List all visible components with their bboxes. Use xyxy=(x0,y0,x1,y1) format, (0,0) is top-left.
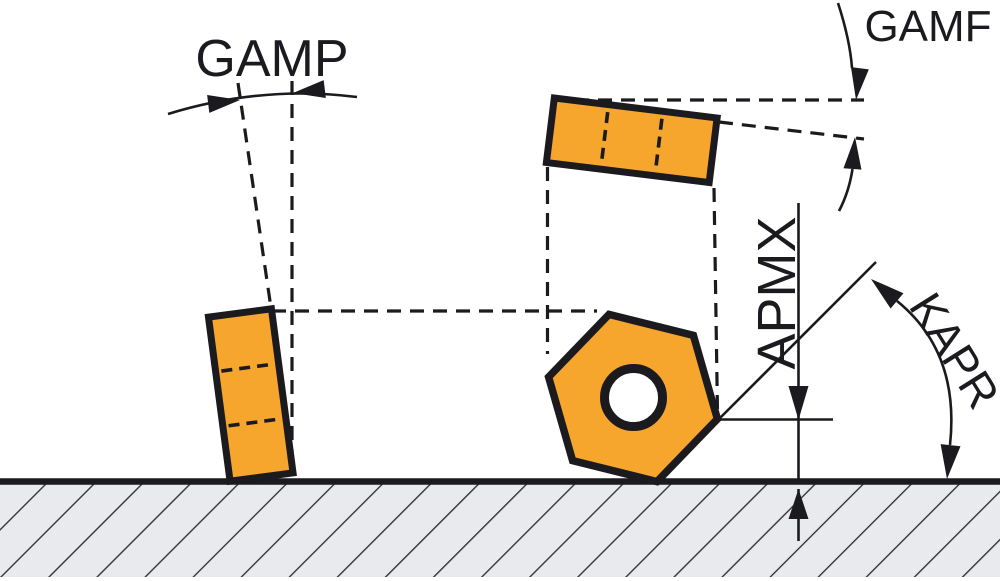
gamf-arrow-up-icon xyxy=(844,136,864,169)
workpiece xyxy=(0,482,1000,578)
gamf-label: GAMF xyxy=(864,2,991,51)
insert-side-view-body xyxy=(208,309,293,481)
apmx-arrow-down-icon xyxy=(789,386,809,420)
gamf-arrow-down-icon xyxy=(847,67,869,101)
insert-front-view-body xyxy=(546,98,717,183)
workpiece-hatch-pattern xyxy=(0,484,1000,577)
gamp-tilted-edge-extension-line xyxy=(238,83,271,308)
gamp-dimension-arc xyxy=(168,93,357,114)
projection-line-right xyxy=(714,188,718,413)
gamp-arrow-left-icon xyxy=(207,91,241,113)
gamf-dimension-arc-lower xyxy=(839,169,853,211)
insert-side-view xyxy=(208,309,293,481)
apmx-label: APMX xyxy=(747,216,807,369)
insert-center-hole xyxy=(605,369,663,427)
diagram-canvas: GAMP GAMF APMX KAPR xyxy=(0,0,1000,581)
gamp-label: GAMP xyxy=(195,30,348,88)
insert-top-view xyxy=(549,314,718,481)
gamf-edge-extension-line xyxy=(719,122,864,139)
gamf-dimension-arc-upper xyxy=(838,3,852,68)
insert-geometry-figure: GAMP GAMF APMX KAPR xyxy=(0,0,1000,581)
insert-front-view xyxy=(546,98,717,183)
kapr-arrow-lower-icon xyxy=(937,444,960,480)
